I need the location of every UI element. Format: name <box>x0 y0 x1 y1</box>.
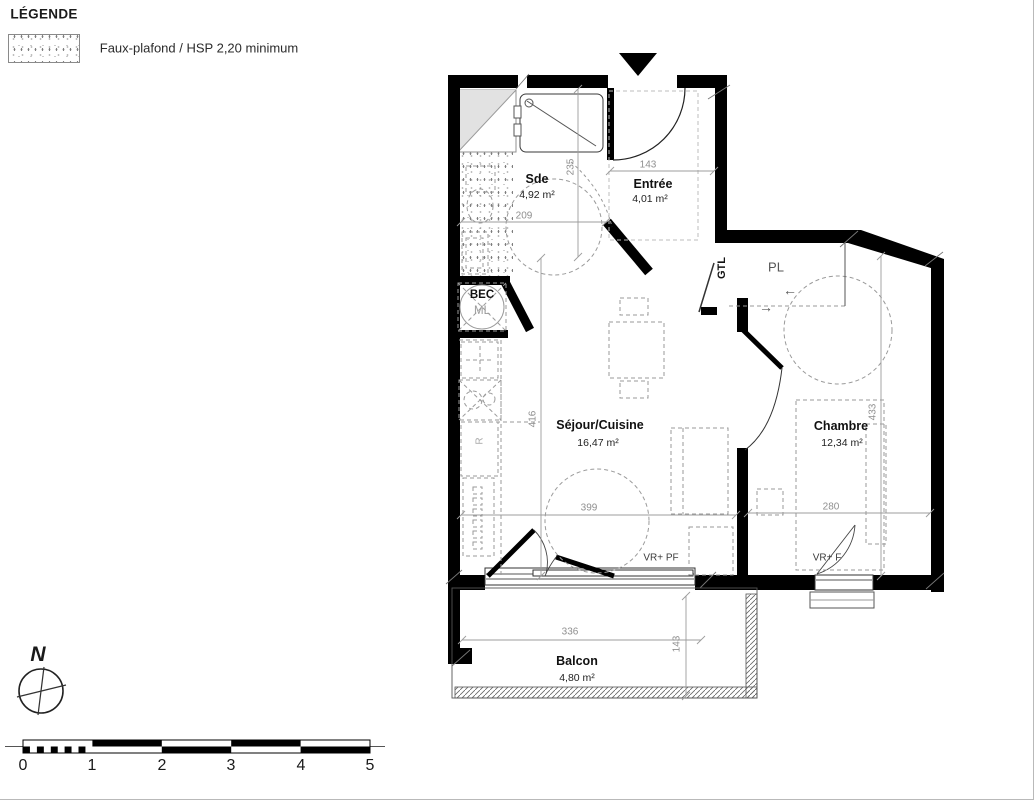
dim-sde-depth: 235 <box>566 159 577 176</box>
entrance-door-arc <box>613 88 685 160</box>
table <box>609 322 664 378</box>
compass-rose <box>17 667 66 715</box>
dim-sejour-depth: 416 <box>528 411 539 428</box>
entrance-door-leaf <box>607 88 614 160</box>
pl-slide-arrow-right: → <box>759 299 773 315</box>
sde-fixtures <box>458 90 603 152</box>
room-label-entree: Entrée <box>634 177 673 191</box>
floor-plan-page: LÉGENDE Faux-plafond / HSP 2,20 minimum <box>0 0 1034 800</box>
room-label-sde: Sde <box>526 172 549 186</box>
chambre-door-leaf <box>741 328 782 368</box>
window-label-chambre: VR+ F <box>813 553 842 564</box>
dim-chambre-width: 280 <box>823 502 840 513</box>
annotation-ml: ML <box>474 305 490 317</box>
room-label-balcon: Balcon <box>556 654 598 668</box>
annotation-pl: PL <box>768 260 784 275</box>
chambre-turning-circle <box>784 276 892 384</box>
room-area-chambre: 12,34 m² <box>821 437 862 449</box>
room-area-balcon: 4,80 m² <box>559 672 595 684</box>
room-area-entree: 4,01 m² <box>632 193 668 205</box>
radiator <box>463 478 494 556</box>
balcony-structure <box>452 588 757 698</box>
scale-tick-2: 2 <box>158 757 167 775</box>
window-label-sejour: VR+ PF <box>643 553 678 564</box>
toilet <box>467 189 493 223</box>
dim-sde-width: 209 <box>516 211 533 222</box>
entrance-arrow <box>619 53 657 76</box>
dim-sejour-width: 399 <box>581 503 598 514</box>
chair-bottom <box>620 381 648 398</box>
room-area-sejour: 16,47 m² <box>577 437 618 449</box>
sofa <box>671 428 728 514</box>
dim-entree-width: 143 <box>640 160 657 171</box>
nightstand <box>757 489 783 515</box>
chair-top <box>620 298 648 315</box>
scale-tick-4: 4 <box>297 757 306 775</box>
fridge <box>461 422 498 476</box>
dim-chambre-depth: 433 <box>868 404 879 421</box>
annotation-fridge: R <box>475 437 486 444</box>
scale-tick-1: 1 <box>88 757 97 775</box>
dim-balcon-depth: 143 <box>672 636 683 653</box>
gtl-duct-line <box>699 263 714 312</box>
scale-tick-3: 3 <box>227 757 236 775</box>
room-label-sejour: Séjour/Cuisine <box>556 418 644 432</box>
scale-tick-5: 5 <box>366 757 375 775</box>
chambre-window <box>815 575 873 590</box>
scale-bar <box>5 740 385 753</box>
dim-balcon-width: 336 <box>562 627 579 638</box>
room-area-sde: 4,92 m² <box>519 189 555 201</box>
pl-slide-arrow-left: ← <box>783 282 797 298</box>
floor-plan-graphics <box>0 0 1034 800</box>
chambre-door-arc <box>745 368 782 450</box>
north-label: N <box>30 643 45 667</box>
scale-tick-0: 0 <box>19 757 28 775</box>
annotation-gtl: GTL <box>716 257 728 279</box>
room-label-chambre: Chambre <box>814 419 868 433</box>
sde-door-arc <box>571 162 612 227</box>
annotation-bec: BEC <box>470 289 494 301</box>
windows <box>485 525 874 608</box>
